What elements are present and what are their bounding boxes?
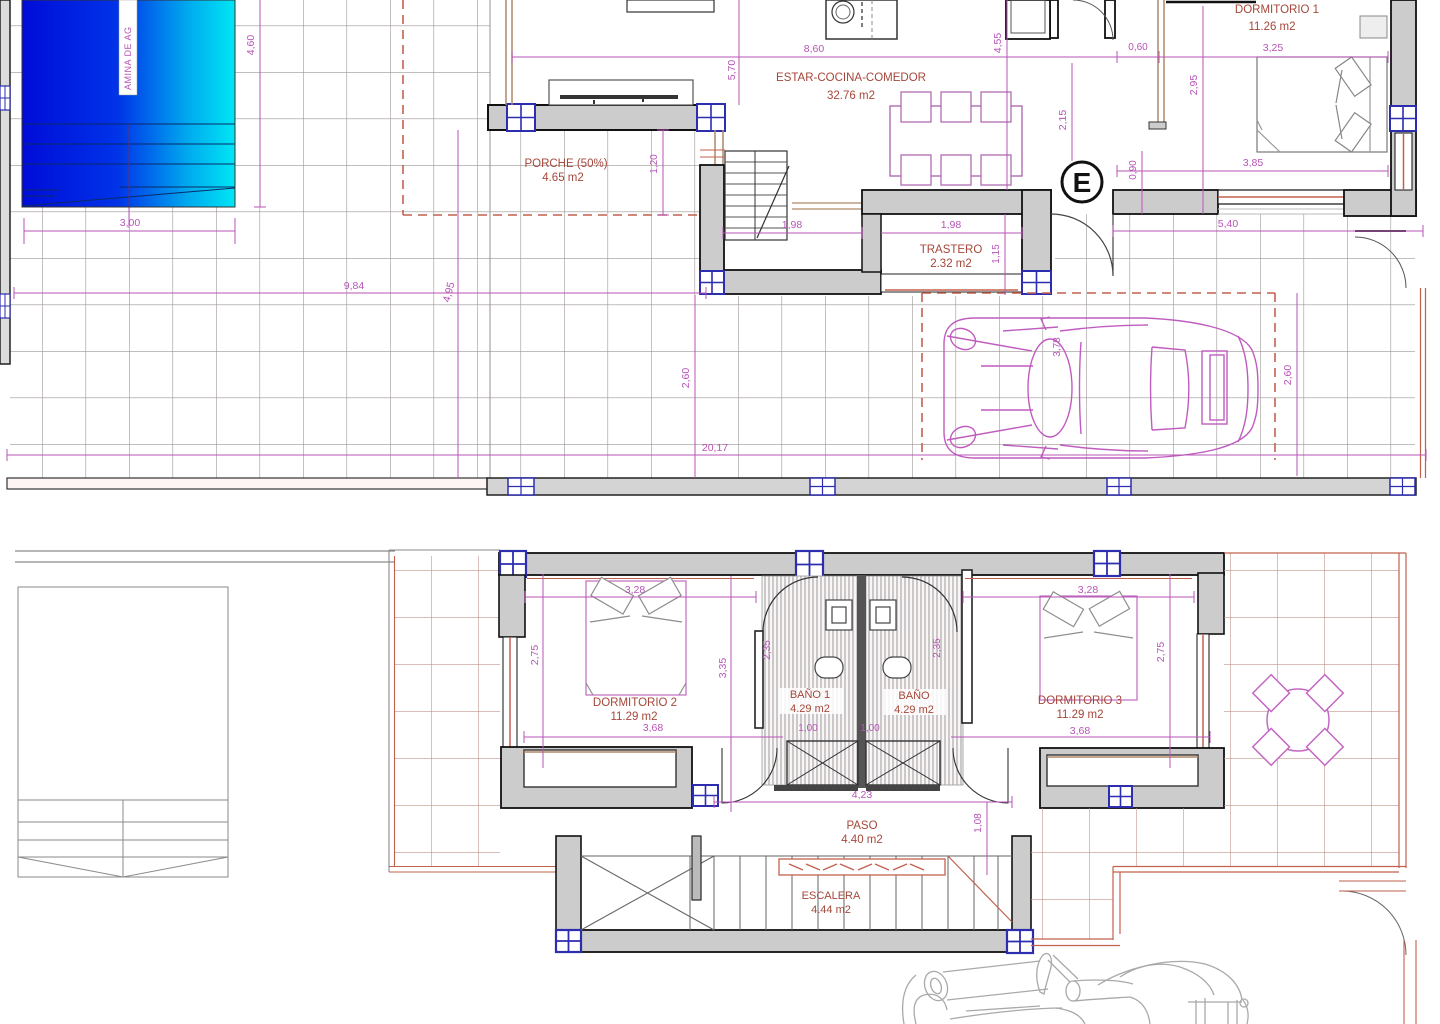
- svg-text:4.29 m2: 4.29 m2: [894, 704, 934, 716]
- svg-text:4.40 m2: 4.40 m2: [841, 834, 883, 846]
- svg-text:2,75: 2,75: [529, 645, 541, 666]
- svg-text:E: E: [1073, 167, 1092, 198]
- svg-text:1,00: 1,00: [798, 723, 818, 734]
- svg-text:AMINA DE AG: AMINA DE AG: [123, 26, 133, 90]
- svg-text:3,28: 3,28: [1078, 584, 1099, 596]
- svg-text:1,98: 1,98: [941, 219, 962, 231]
- svg-text:2,75: 2,75: [1155, 642, 1167, 663]
- svg-text:2,60: 2,60: [1282, 365, 1294, 386]
- svg-text:2,35: 2,35: [932, 638, 943, 658]
- svg-text:2,15: 2,15: [1057, 110, 1069, 131]
- svg-text:PORCHE (50%): PORCHE (50%): [524, 158, 607, 170]
- svg-text:11.26 m2: 11.26 m2: [1248, 21, 1295, 33]
- svg-text:4.44 m2: 4.44 m2: [811, 904, 851, 916]
- svg-text:DORMITORIO 3: DORMITORIO 3: [1038, 695, 1122, 707]
- svg-text:1,98: 1,98: [782, 219, 803, 231]
- svg-text:3,78: 3,78: [1052, 337, 1063, 357]
- svg-text:3,28: 3,28: [625, 584, 646, 596]
- svg-text:9,84: 9,84: [344, 280, 365, 292]
- svg-text:4,55: 4,55: [992, 33, 1004, 54]
- svg-text:5,70: 5,70: [726, 60, 738, 81]
- svg-text:4.65 m2: 4.65 m2: [542, 172, 584, 184]
- svg-text:0,90: 0,90: [1128, 160, 1139, 180]
- svg-text:TRASTERO: TRASTERO: [920, 244, 983, 256]
- svg-text:1,20: 1,20: [649, 154, 660, 174]
- svg-text:20,17: 20,17: [702, 442, 728, 454]
- svg-text:1,15: 1,15: [991, 244, 1002, 264]
- svg-text:4.29 m2: 4.29 m2: [790, 703, 830, 715]
- svg-text:3,68: 3,68: [643, 722, 664, 734]
- svg-text:2,35: 2,35: [762, 640, 773, 660]
- svg-text:1,00: 1,00: [860, 723, 880, 734]
- svg-text:DORMITORIO 2: DORMITORIO 2: [593, 697, 677, 709]
- svg-text:5,40: 5,40: [1218, 218, 1239, 230]
- svg-text:ESTAR-COCINA-COMEDOR: ESTAR-COCINA-COMEDOR: [776, 72, 926, 84]
- svg-text:3,25: 3,25: [1263, 42, 1284, 54]
- svg-text:32.76 m2: 32.76 m2: [827, 90, 875, 102]
- svg-text:ESCALERA: ESCALERA: [802, 890, 861, 902]
- svg-text:BAÑO 1: BAÑO 1: [790, 688, 830, 701]
- svg-text:3,00: 3,00: [120, 217, 141, 229]
- svg-text:PASO: PASO: [846, 820, 877, 832]
- svg-text:4,23: 4,23: [852, 789, 873, 801]
- svg-text:0,60: 0,60: [1128, 42, 1148, 53]
- svg-text:1,08: 1,08: [973, 813, 984, 833]
- svg-text:2,95: 2,95: [1188, 75, 1200, 96]
- svg-text:8,60: 8,60: [804, 43, 825, 55]
- svg-text:BAÑO: BAÑO: [898, 689, 930, 702]
- svg-text:3,68: 3,68: [1070, 725, 1091, 737]
- svg-text:2.32 m2: 2.32 m2: [930, 258, 972, 270]
- svg-text:3,85: 3,85: [1243, 157, 1264, 169]
- svg-text:DORMITORIO 1: DORMITORIO 1: [1235, 4, 1319, 16]
- svg-text:3,35: 3,35: [717, 658, 729, 679]
- svg-text:4,60: 4,60: [245, 35, 257, 56]
- svg-text:11.29 m2: 11.29 m2: [1056, 709, 1103, 721]
- svg-text:2,60: 2,60: [680, 368, 692, 389]
